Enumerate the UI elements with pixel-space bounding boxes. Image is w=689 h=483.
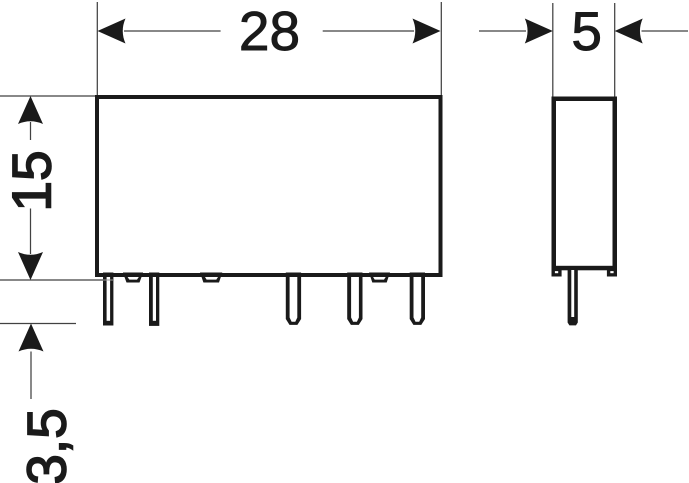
svg-text:28: 28	[239, 0, 300, 62]
svg-text:5: 5	[571, 0, 602, 62]
svg-text:3,5: 3,5	[16, 408, 78, 483]
svg-text:15: 15	[1, 150, 63, 211]
